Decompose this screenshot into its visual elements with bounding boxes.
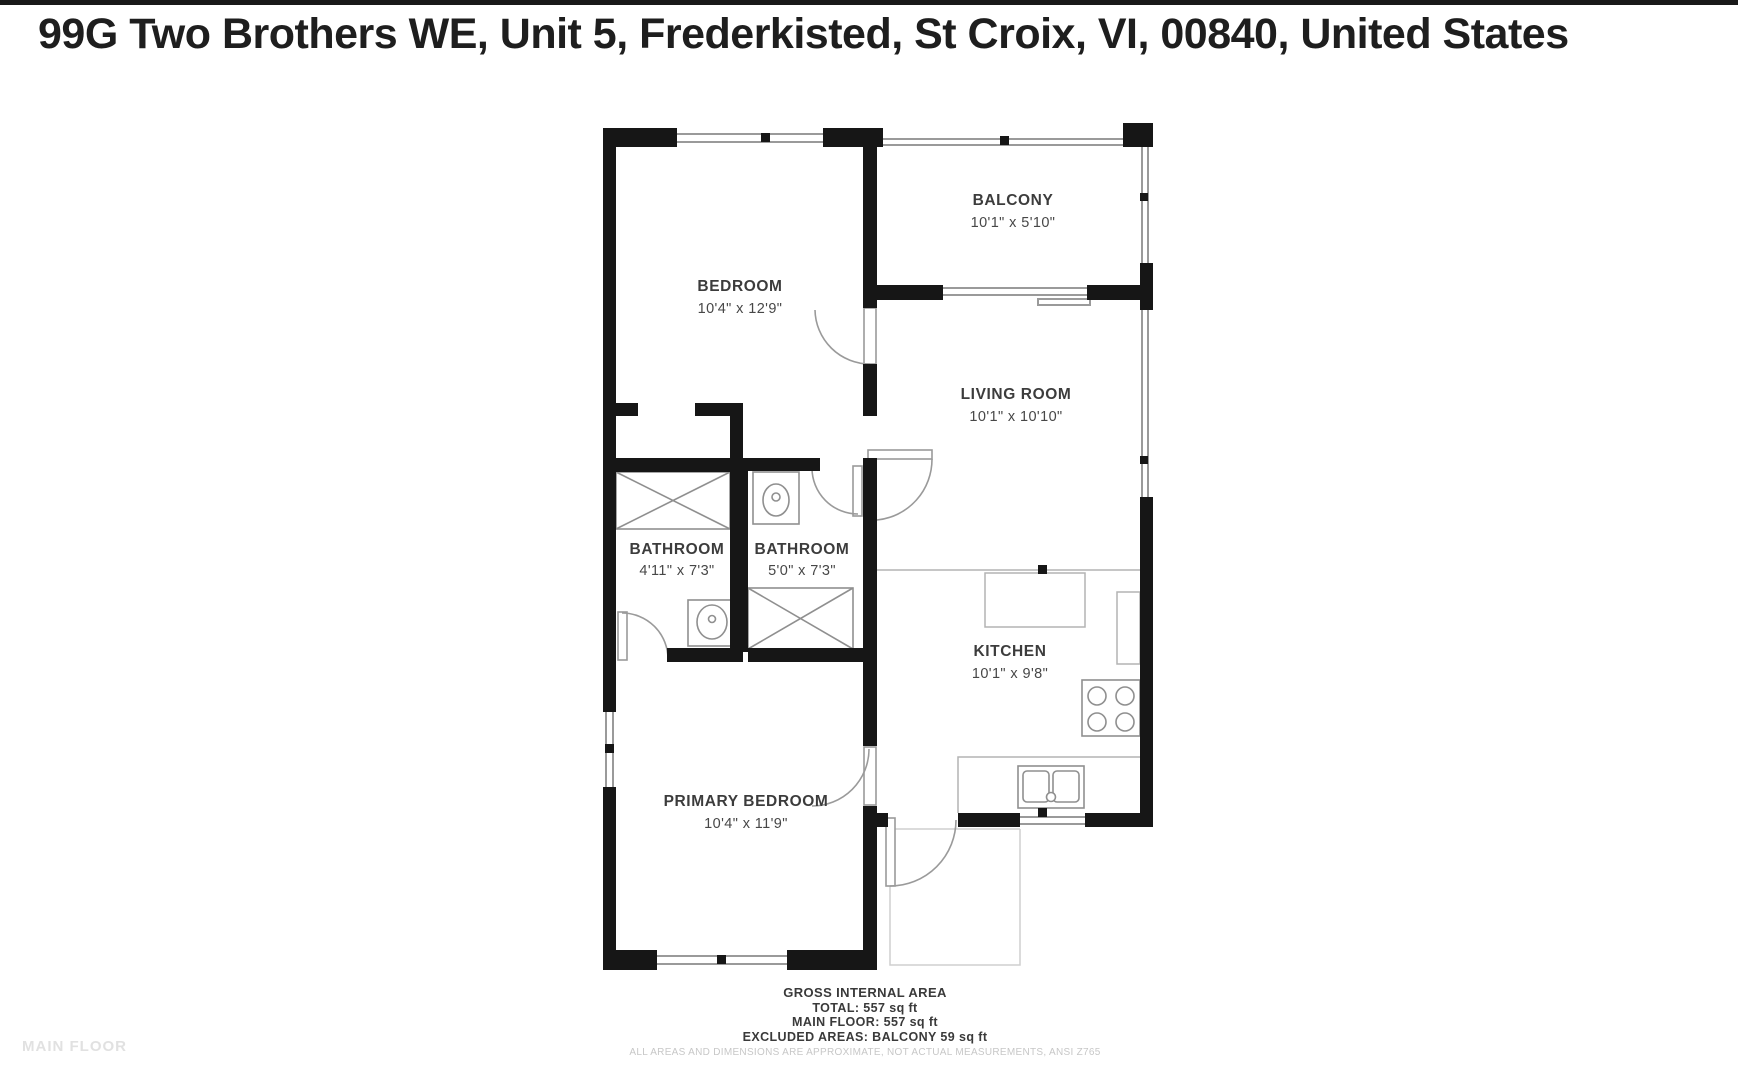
room-label-bedroom: BEDROOM [697, 278, 782, 295]
room-label-living-room: LIVING ROOM [961, 386, 1072, 403]
entry-door [886, 818, 956, 886]
room-dims-bathroom-2: 5'0" x 7'3" [768, 563, 836, 579]
room-dims-primary-bedroom: 10'4" x 11'9" [704, 816, 788, 832]
area-excluded: EXCLUDED AREAS: BALCONY 59 sq ft [465, 1030, 1265, 1045]
wall-tick [1000, 136, 1009, 145]
wall-tick [1140, 193, 1148, 201]
room-dims-bedroom: 10'4" x 12'9" [698, 301, 783, 317]
kitchen-cabinet [985, 573, 1085, 627]
floor-watermark: MAIN FLOOR [22, 1038, 127, 1055]
kitchen-counters [877, 570, 1140, 965]
area-disclaimer: ALL AREAS AND DIMENSIONS ARE APPROXIMATE… [465, 1047, 1265, 1058]
room-dims-balcony: 10'1" x 5'10" [971, 215, 1056, 231]
bathroom2-door [812, 466, 862, 516]
room-dims-living-room: 10'1" x 10'10" [969, 409, 1062, 425]
area-summary: GROSS INTERNAL AREA TOTAL: 557 sq ft MAI… [465, 986, 1265, 1058]
room-dims-bathroom-1: 4'11" x 7'3" [639, 563, 714, 579]
shower-icon [616, 472, 730, 529]
wall-tick [1140, 456, 1148, 464]
fridge-icon [1117, 592, 1140, 664]
bedroom-top-window [677, 126, 823, 149]
room-label-kitchen: KITCHEN [973, 643, 1046, 660]
room-label-primary-bedroom: PRIMARY BEDROOM [664, 793, 829, 810]
bedroom-door [815, 308, 876, 364]
toilet-icon [753, 472, 799, 524]
room-label-balcony: BALCONY [973, 192, 1054, 209]
room-label-bathroom-2: BATHROOM [755, 541, 850, 558]
shower-icon-2 [748, 588, 853, 649]
floor-plan-svg: BEDROOM 10'4" x 12'9" BALCONY 10'1" x 5'… [595, 115, 1160, 980]
area-heading: GROSS INTERNAL AREA [465, 986, 1265, 1001]
kitchen-window [1020, 808, 1085, 829]
stove-icon [1082, 680, 1140, 736]
wall-tick [607, 266, 616, 275]
wall-tick [1038, 565, 1047, 574]
primary-bedroom-side-window [601, 712, 618, 787]
bathroom1-door [618, 612, 668, 660]
area-main-floor: MAIN FLOOR: 557 sq ft [465, 1015, 1265, 1030]
room-label-bathroom-1: BATHROOM [630, 541, 725, 558]
bathroom-sink-icon [688, 600, 736, 646]
primary-bedroom-window [657, 948, 787, 972]
area-total: TOTAL: 557 sq ft [465, 1001, 1265, 1016]
page-title: 99G Two Brothers WE, Unit 5, Frederkiste… [38, 10, 1698, 59]
kitchen-sink-icon [1018, 766, 1084, 808]
room-dims-kitchen: 10'1" x 9'8" [972, 666, 1048, 682]
floor-plan: BEDROOM 10'4" x 12'9" BALCONY 10'1" x 5'… [595, 115, 1160, 980]
top-border-bar [0, 0, 1738, 5]
living-room-door [868, 450, 932, 520]
